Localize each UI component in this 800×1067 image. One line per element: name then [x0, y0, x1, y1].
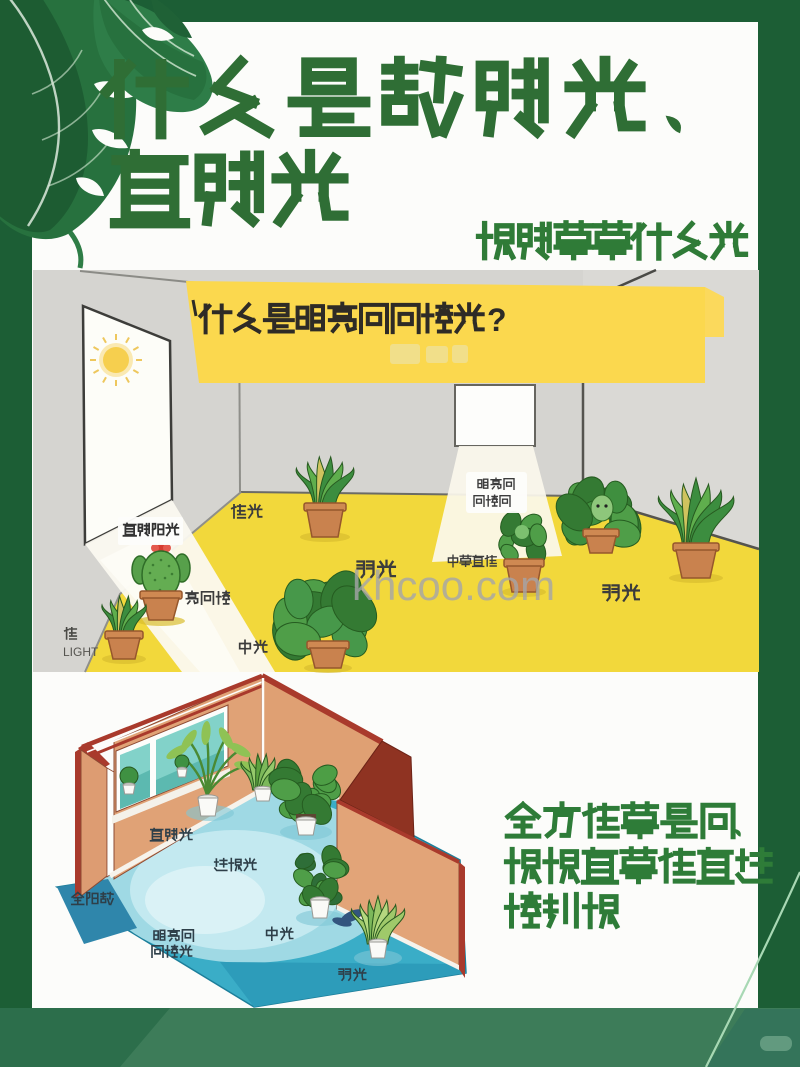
svg-text:?: ?	[487, 302, 507, 338]
svg-text:khcoo.com: khcoo.com	[352, 562, 555, 609]
svg-text:LIGHT: LIGHT	[63, 645, 99, 659]
